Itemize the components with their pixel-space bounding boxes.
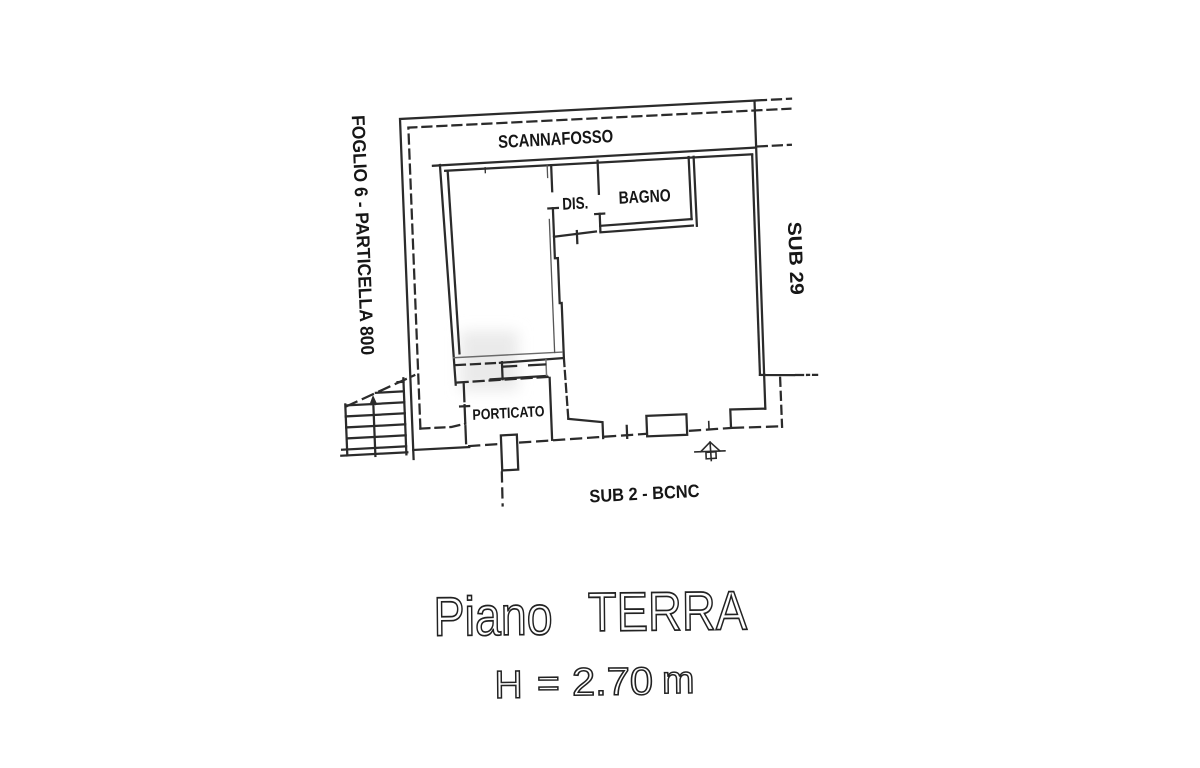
svg-text:H: H — [494, 664, 523, 707]
svg-text:SCANNAFOSSO: SCANNAFOSSO — [498, 126, 614, 152]
svg-text:PORTICATO: PORTICATO — [472, 403, 545, 424]
svg-text:m: m — [662, 659, 695, 702]
svg-text:SUB 2 - BCNC: SUB 2 - BCNC — [589, 481, 700, 507]
svg-text:FOGLIO 6 - PARTICELLA 800: FOGLIO 6 - PARTICELLA 800 — [348, 115, 379, 356]
svg-text:2.70: 2.70 — [572, 660, 653, 704]
svg-text:TERRA: TERRA — [588, 579, 748, 643]
svg-text:Piano: Piano — [433, 584, 553, 647]
svg-text:SUB 29: SUB 29 — [783, 221, 807, 295]
svg-text:DIS.: DIS. — [562, 193, 589, 213]
svg-text:=: = — [537, 662, 560, 705]
svg-text:BAGNO: BAGNO — [618, 185, 671, 208]
